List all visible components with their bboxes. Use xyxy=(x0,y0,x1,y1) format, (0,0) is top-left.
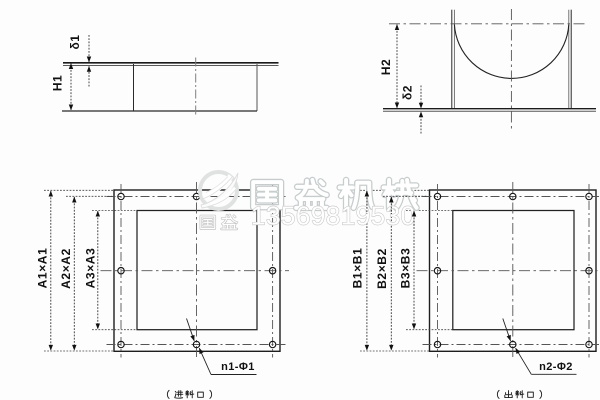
svg-text:δ1: δ1 xyxy=(68,35,82,50)
svg-text:H2: H2 xyxy=(379,59,393,75)
svg-text:n2-Φ2: n2-Φ2 xyxy=(539,361,573,373)
svg-text:B2×B2: B2×B2 xyxy=(375,248,389,289)
svg-text:B3×B3: B3×B3 xyxy=(399,248,413,289)
svg-text:A1×A1: A1×A1 xyxy=(36,248,50,289)
svg-text:A3×A3: A3×A3 xyxy=(84,248,98,289)
svg-text:n1-Φ1: n1-Φ1 xyxy=(221,361,255,373)
svg-text:A2×A2: A2×A2 xyxy=(59,248,73,289)
svg-text:δ2: δ2 xyxy=(400,85,414,100)
svg-text:H1: H1 xyxy=(51,75,65,91)
svg-text:B1×B1: B1×B1 xyxy=(351,248,365,289)
